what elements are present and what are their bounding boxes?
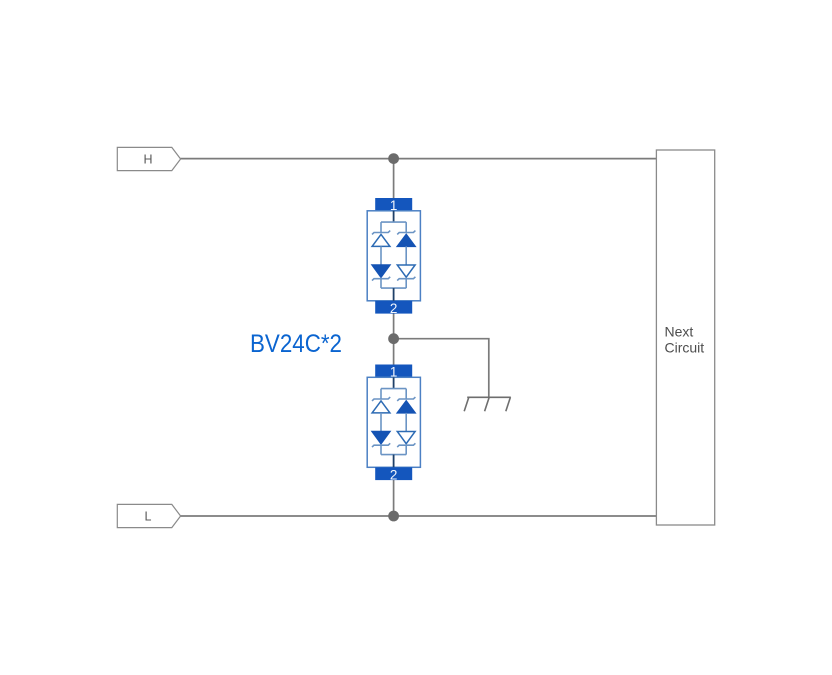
svg-text:2: 2 — [390, 301, 398, 316]
svg-text:H: H — [143, 153, 152, 167]
svg-text:Next: Next — [665, 324, 694, 340]
svg-text:BV24C*2: BV24C*2 — [250, 330, 342, 358]
svg-text:Circuit: Circuit — [665, 340, 705, 356]
svg-text:2: 2 — [390, 468, 398, 483]
svg-text:L: L — [145, 510, 152, 524]
